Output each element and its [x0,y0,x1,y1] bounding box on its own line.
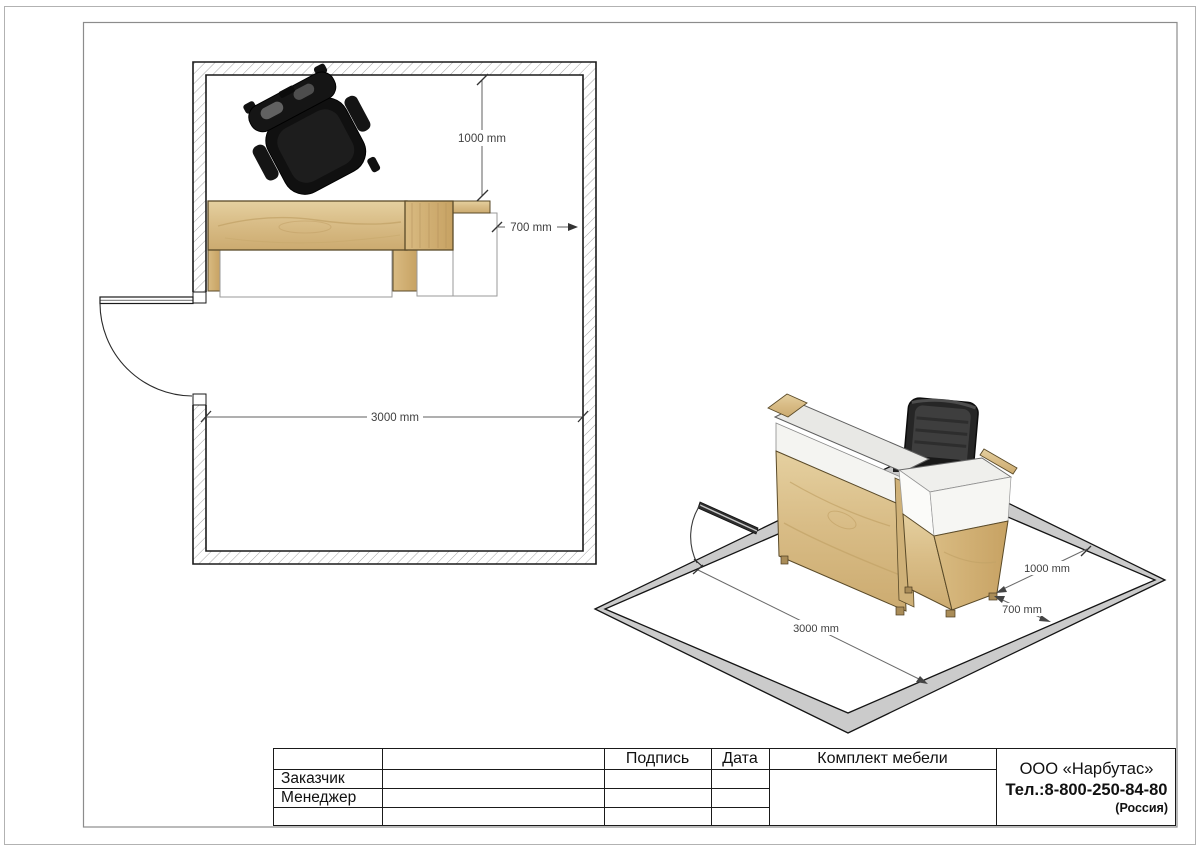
inner-drawing-frame [84,23,1178,828]
company-phone: Тел.:8-800-250-84-80 [1006,781,1168,800]
plan-office-chair [231,57,392,219]
customer-label: Заказчик [274,769,389,788]
plan-door-jamb-top [193,292,206,303]
isometric-view: 3000 mm [595,394,1165,733]
plan-desk-left-sliver [208,250,220,291]
plan-desk-return-counter [453,213,497,296]
iso-reception-desk [768,394,1017,617]
plan-dim-side-label: 700 mm [510,222,552,234]
iso-dim-side-label: 700 mm [1002,604,1042,616]
plan-desk-lower-panel [220,250,392,297]
drawing-sheet: 1000 mm 700 mm 3000 mm 3000 mm [0,0,1200,850]
plan-desk-lower-panel-right [417,250,453,296]
plan-dim-arrow [568,223,578,231]
iso-dim-width-label: 3000 mm [793,623,839,635]
iso-dim-back-label: 1000 mm [1024,563,1070,575]
iso-door-swing-arc [691,505,700,563]
plan-door-opening [192,292,208,405]
drawing-canvas: 1000 mm 700 mm 3000 mm 3000 mm [0,0,1200,850]
iso-door-leaf-line [700,505,757,531]
company-country: (Россия) [1115,801,1177,815]
furniture-set-header: Комплект мебели [769,749,996,769]
chair-lever [366,156,381,173]
signature-header: Подпись [604,749,711,769]
plan-desk-back-strip [453,201,490,213]
floor-plan-view: 1000 mm 700 mm 3000 mm [100,57,596,564]
plan-reception-desk [208,201,497,297]
outer-page-frame [5,7,1196,845]
company-name: ООО «Нарбутас» [1020,760,1154,779]
plan-dim-width-label: 3000 mm [371,412,419,424]
company-info: ООО «Нарбутас» Тел.:8-800-250-84-80 (Рос… [996,749,1177,825]
title-block-divider [274,807,769,808]
plan-desk-mid-strip [393,250,417,291]
iso-dim-side: 700 mm [994,596,1051,622]
plan-door-jamb-bottom [193,394,206,405]
plan-room-walls [193,62,596,564]
manager-label: Менеджер [274,788,389,807]
plan-door-swing-arc [100,304,192,397]
date-header: Дата [711,749,769,769]
title-block: Заказчик Менеджер Подпись Дата Комплект … [273,748,1176,826]
plan-dim-top-label: 1000 mm [458,133,506,145]
iso-dim-back: 1000 mm [996,546,1091,593]
